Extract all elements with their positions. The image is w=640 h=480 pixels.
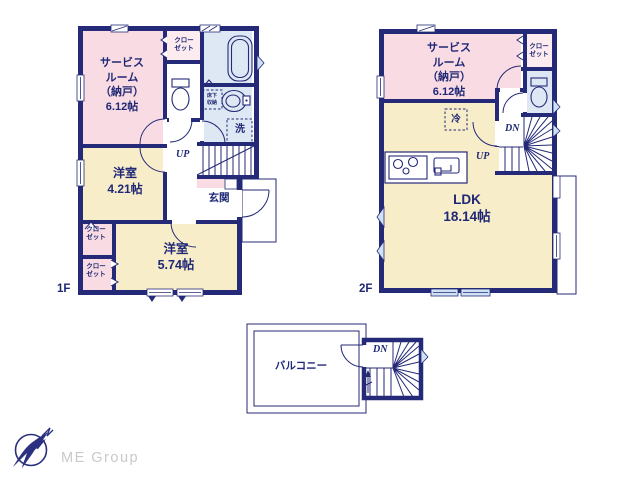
floorplan-canvas: サービス ルーム （納戸） 6.12帖 クロー ゼット 床下 収納 洗 UP 洋… bbox=[0, 0, 640, 480]
label-underfloor-storage: 床下 収納 bbox=[207, 93, 217, 107]
room-label-balcony: バルコニー bbox=[275, 360, 327, 374]
room-label-service-1f: サービス ルーム （納戸） 6.12帖 bbox=[100, 56, 144, 114]
room-label-bedroom-large: 洋室 5.74帖 bbox=[158, 241, 195, 274]
room-label-closet-top-1f: クロー ゼット bbox=[174, 37, 194, 54]
label-refrigerator: 冷 bbox=[451, 114, 461, 126]
label-dn-roof: DN bbox=[373, 345, 387, 355]
floor-label-2f: 2F bbox=[359, 282, 372, 297]
logo-company-name: ME Group bbox=[61, 450, 139, 466]
room-label-closet-left-upper: クロー ゼット bbox=[86, 226, 106, 243]
entrance-cabinet bbox=[225, 179, 237, 189]
label-up-2f: UP bbox=[476, 152, 489, 162]
floor-label-1f: 1F bbox=[57, 282, 70, 297]
room-label-bedroom-small: 洋室 4.21帖 bbox=[107, 166, 142, 198]
label-washer: 洗 bbox=[235, 123, 245, 136]
room-label-closet-2f: クロー ゼット bbox=[529, 43, 549, 60]
room-label-service-2f: サービス ルーム （納戸） 6.12帖 bbox=[427, 41, 471, 99]
kitchen-counter-icon bbox=[385, 152, 467, 183]
room-label-closet-left-lower: クロー ゼット bbox=[86, 263, 106, 280]
room-label-entrance: 玄関 bbox=[209, 192, 230, 206]
room-label-ldk: LDK 18.14帖 bbox=[443, 191, 490, 226]
label-up-1f: UP bbox=[176, 150, 189, 160]
label-dn-2f: DN bbox=[505, 124, 519, 134]
logo-bird-icon bbox=[13, 428, 53, 468]
